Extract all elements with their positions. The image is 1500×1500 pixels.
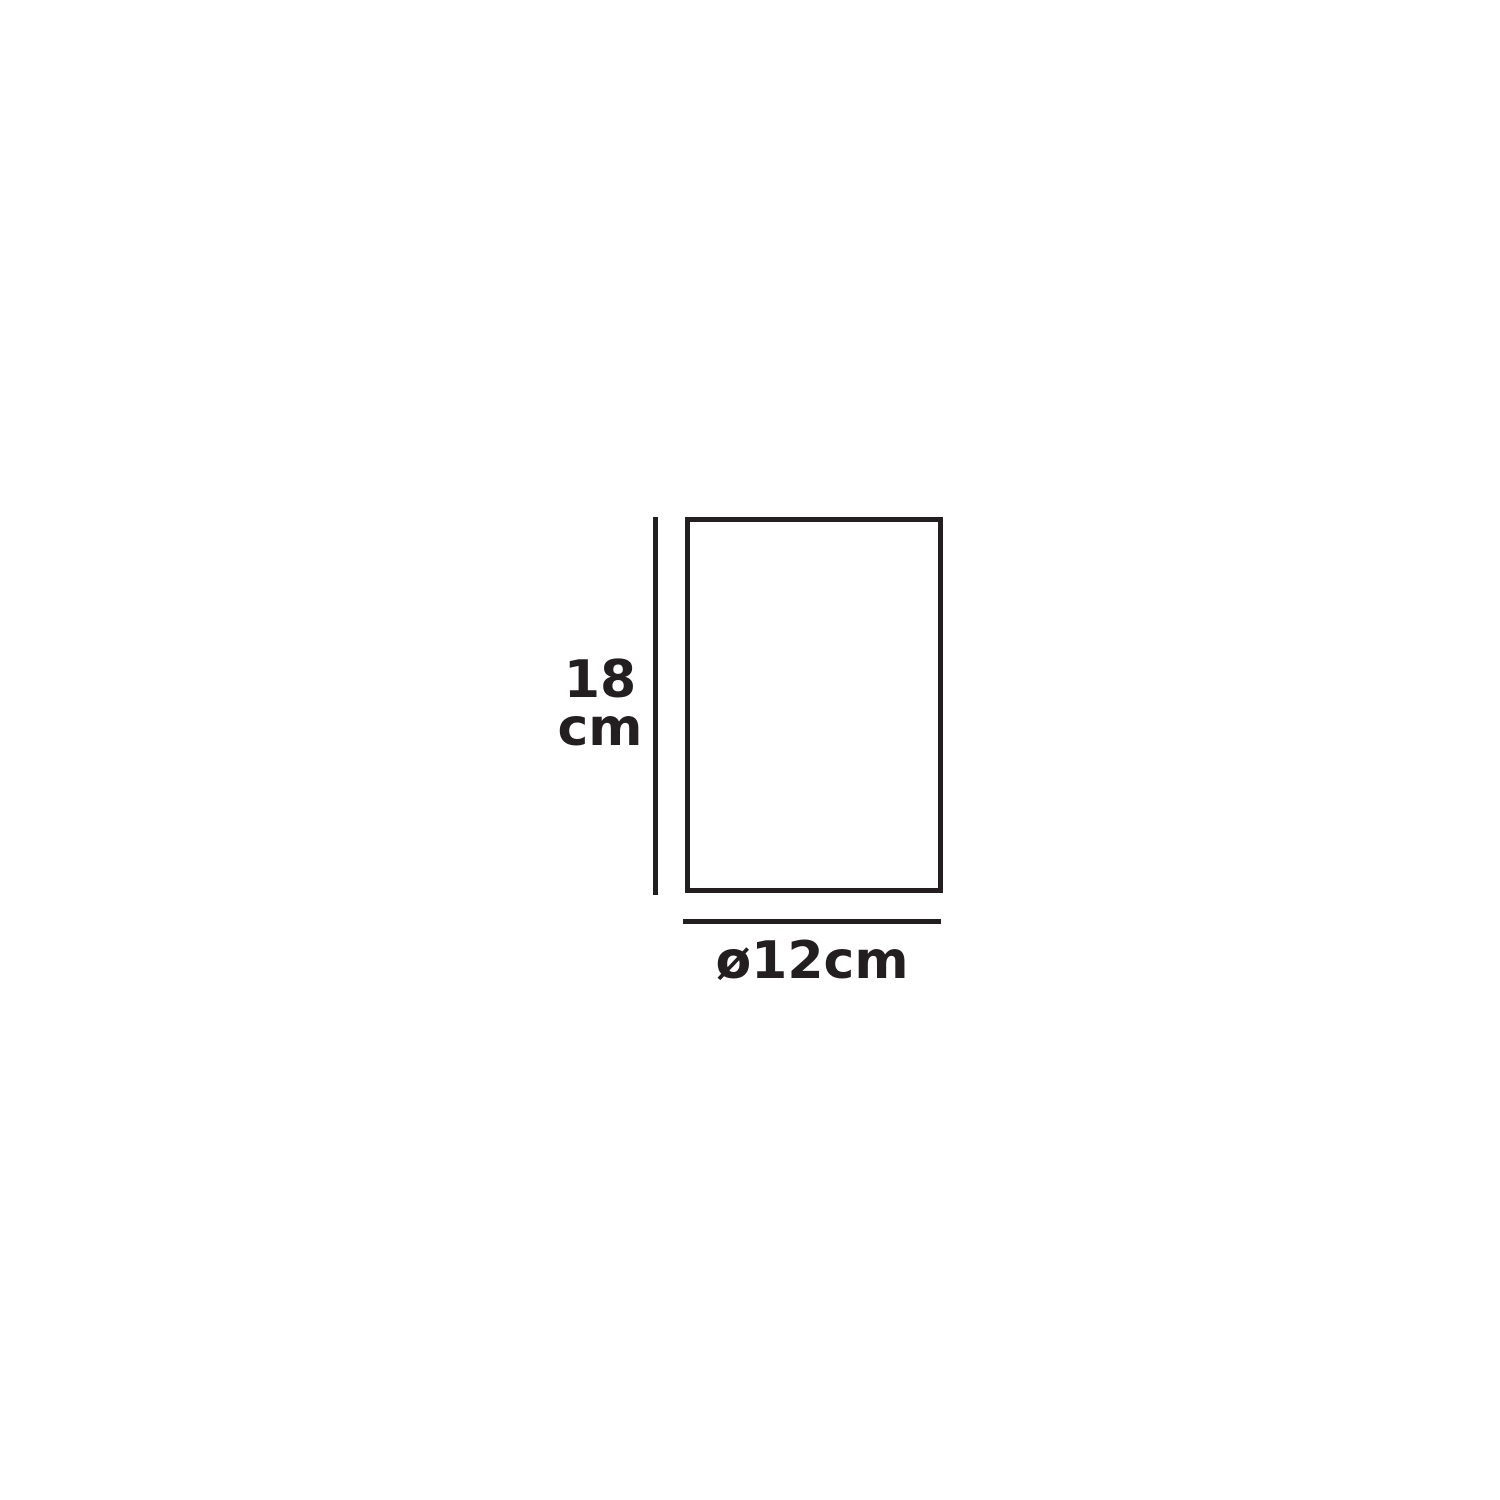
height-unit: cm — [535, 704, 665, 752]
height-value: 18 — [535, 656, 665, 704]
diameter-label: ø12cm — [683, 933, 941, 990]
height-label: 18 cm — [535, 656, 665, 753]
dimension-diagram: 18 cm ø12cm — [0, 0, 1500, 1500]
diameter-dimension-line — [683, 919, 941, 924]
product-outline-rectangle — [685, 517, 943, 893]
